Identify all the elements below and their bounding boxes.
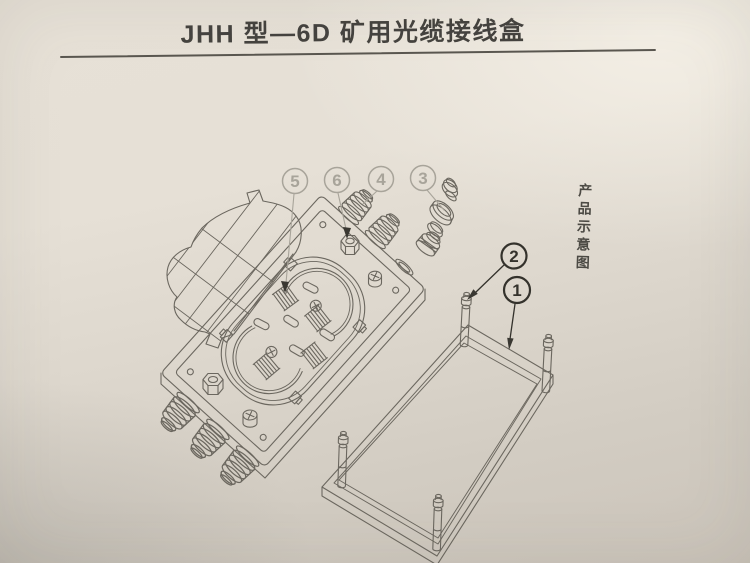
fiber-slot (319, 328, 336, 342)
splice-comb (253, 353, 280, 380)
lid-cover (115, 168, 320, 389)
lid-grid (115, 168, 320, 389)
hex-standoff (341, 236, 359, 255)
gland-plug (438, 176, 465, 202)
callout-number-1: 1 (512, 281, 521, 300)
corner-post-4 (432, 494, 444, 551)
cable-gland-top-2 (363, 208, 405, 251)
gland-seal (425, 219, 446, 239)
exploded-diagram: 5 6 4 3 2 1 (0, 0, 750, 563)
gland-exploded-parts (399, 176, 480, 259)
corner-post-3 (337, 431, 349, 488)
corner-post-1 (459, 292, 471, 347)
callout-number-5: 5 (290, 172, 299, 191)
tray-screw (264, 344, 280, 360)
callout-number-3: 3 (418, 169, 427, 188)
callout-leader-3 (427, 190, 444, 210)
gland-knurled-body (414, 227, 445, 258)
callout-arrow-2 (467, 289, 478, 300)
splice-tray (200, 236, 386, 426)
callout-number-4: 4 (376, 170, 386, 189)
gland-port-hole (394, 257, 415, 277)
callout-number-2: 2 (509, 247, 518, 266)
callout-leader-2 (476, 265, 504, 292)
callout-number-6: 6 (332, 171, 341, 190)
callout-leader-5 (286, 194, 294, 283)
fiber-slot (302, 281, 319, 295)
fiber-slot (253, 317, 270, 331)
splice-comb (301, 342, 327, 369)
mount-screw (243, 410, 257, 427)
callout-leader-1 (510, 304, 515, 339)
fiber-slot (282, 314, 299, 328)
main-body (136, 121, 492, 494)
body-rim (175, 209, 411, 453)
photo-background: JHH 型—6D 矿用光缆接线盒 产品示意图 (0, 0, 750, 563)
mount-screw (369, 271, 382, 287)
hex-standoff (203, 374, 223, 395)
fiber-slot (288, 344, 305, 358)
cover-thickness (322, 375, 553, 563)
bottom-cover-plate (322, 325, 553, 563)
